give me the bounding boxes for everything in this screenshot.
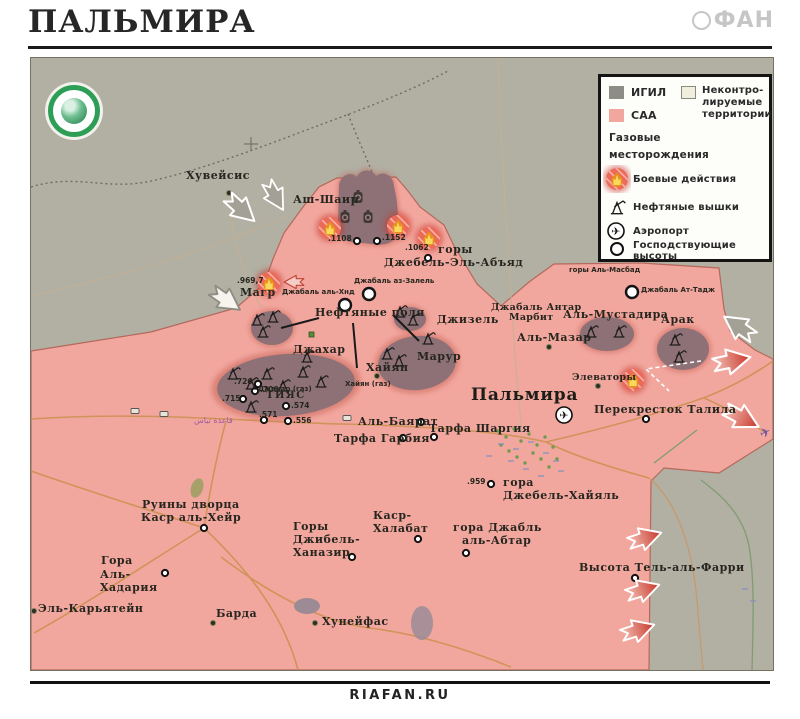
- spot-height-marker: [643, 416, 649, 422]
- legend-saa-label: САА: [631, 110, 657, 122]
- spot-height-marker: [349, 554, 355, 560]
- legend-combat-icon: [603, 165, 631, 193]
- dominant-height-marker: [363, 288, 375, 300]
- spot-height-marker: [255, 381, 261, 387]
- spot-height-marker: [283, 403, 289, 409]
- spot-height-marker: [425, 255, 431, 261]
- palm-grove-dot: [555, 457, 558, 460]
- palm-grove-dot: [504, 435, 507, 438]
- oil-field-blob: [657, 328, 709, 370]
- palm-grove-dot: [527, 432, 530, 435]
- spot-height-marker: [418, 419, 424, 425]
- fan-logo-text: ФАН: [714, 8, 774, 33]
- spot-height-marker: [400, 435, 406, 441]
- palm-grove-dot: [515, 455, 518, 458]
- legend-gas-label-1: Газовые: [609, 132, 661, 144]
- palm-grove-dot: [512, 427, 515, 430]
- dominant-height-marker: [339, 299, 351, 311]
- vehicle-icon: [131, 409, 139, 414]
- legend-heights-label-2: высоты: [633, 251, 677, 263]
- legend-uncontrolled-swatch: [681, 86, 696, 99]
- jahar-green-marker: [309, 332, 314, 337]
- palm-grove-dot: [547, 465, 550, 468]
- fan-ring-icon: [692, 11, 711, 30]
- title-rule: [28, 46, 772, 49]
- legend-saa-swatch: [609, 109, 624, 122]
- footer-site: RIAFAN.RU: [0, 688, 800, 703]
- spot-height-marker: [415, 536, 421, 542]
- spot-height-marker: [374, 238, 380, 244]
- legend-uncontrolled-label: Неконтро- лируемые территории: [702, 85, 772, 121]
- palm-grove-dot: [523, 461, 526, 464]
- palm-grove-dot: [539, 457, 542, 460]
- page-title: ПАЛЬМИРА: [28, 4, 256, 40]
- palm-grove-dot: [531, 451, 534, 454]
- map-legend: ИГИЛ Неконтро- лируемые территории САА Г…: [598, 74, 772, 262]
- settlement-marker: [31, 608, 36, 613]
- settlement-marker: [210, 620, 215, 625]
- legend-combat-label: Боевые действия: [633, 174, 736, 186]
- legend-airport-label: Аэропорт: [633, 226, 689, 238]
- spot-height-marker: [240, 396, 246, 402]
- legend-derricks-label: Нефтяные вышки: [633, 202, 739, 214]
- legend-igil-swatch: [609, 86, 624, 99]
- spot-height-marker: [261, 417, 267, 423]
- riafan-globe-logo: [45, 82, 103, 140]
- legend-gas-label-2: месторождения: [609, 149, 709, 161]
- palm-grove-dot: [535, 443, 538, 446]
- palm-grove-dot: [543, 435, 546, 438]
- map-canvas: ✈: [30, 57, 774, 671]
- legend-airport-icon: [605, 220, 627, 242]
- palm-grove-dot: [496, 429, 499, 432]
- globe-ring: [48, 85, 100, 137]
- settlement-marker: [374, 373, 379, 378]
- dominant-height-marker: [626, 286, 638, 298]
- palm-grove-dot: [507, 449, 510, 452]
- vehicle-icon: [160, 412, 168, 417]
- settlement-marker: [546, 344, 551, 349]
- globe-icon: [61, 98, 87, 124]
- spot-height-marker: [431, 434, 437, 440]
- settlement-marker: [595, 383, 600, 388]
- settlement-marker: [312, 620, 317, 625]
- spot-height-marker: [162, 570, 168, 576]
- vehicle-icon: [343, 416, 351, 421]
- spot-height-marker: [201, 525, 207, 531]
- spot-height-marker: [463, 550, 469, 556]
- airport-icon: [556, 407, 572, 423]
- fan-logo: ФАН: [692, 8, 774, 33]
- spot-height-marker: [285, 418, 291, 424]
- spot-height-marker: [488, 481, 494, 487]
- legend-derrick-icon: [607, 197, 627, 217]
- legend-igil-label: ИГИЛ: [631, 87, 666, 99]
- legend-heights-icon: [610, 242, 624, 256]
- palm-grove-dot: [551, 445, 554, 448]
- footer-rule: [30, 681, 770, 684]
- spot-height-marker: [354, 238, 360, 244]
- palm-grove-dot: [519, 439, 522, 442]
